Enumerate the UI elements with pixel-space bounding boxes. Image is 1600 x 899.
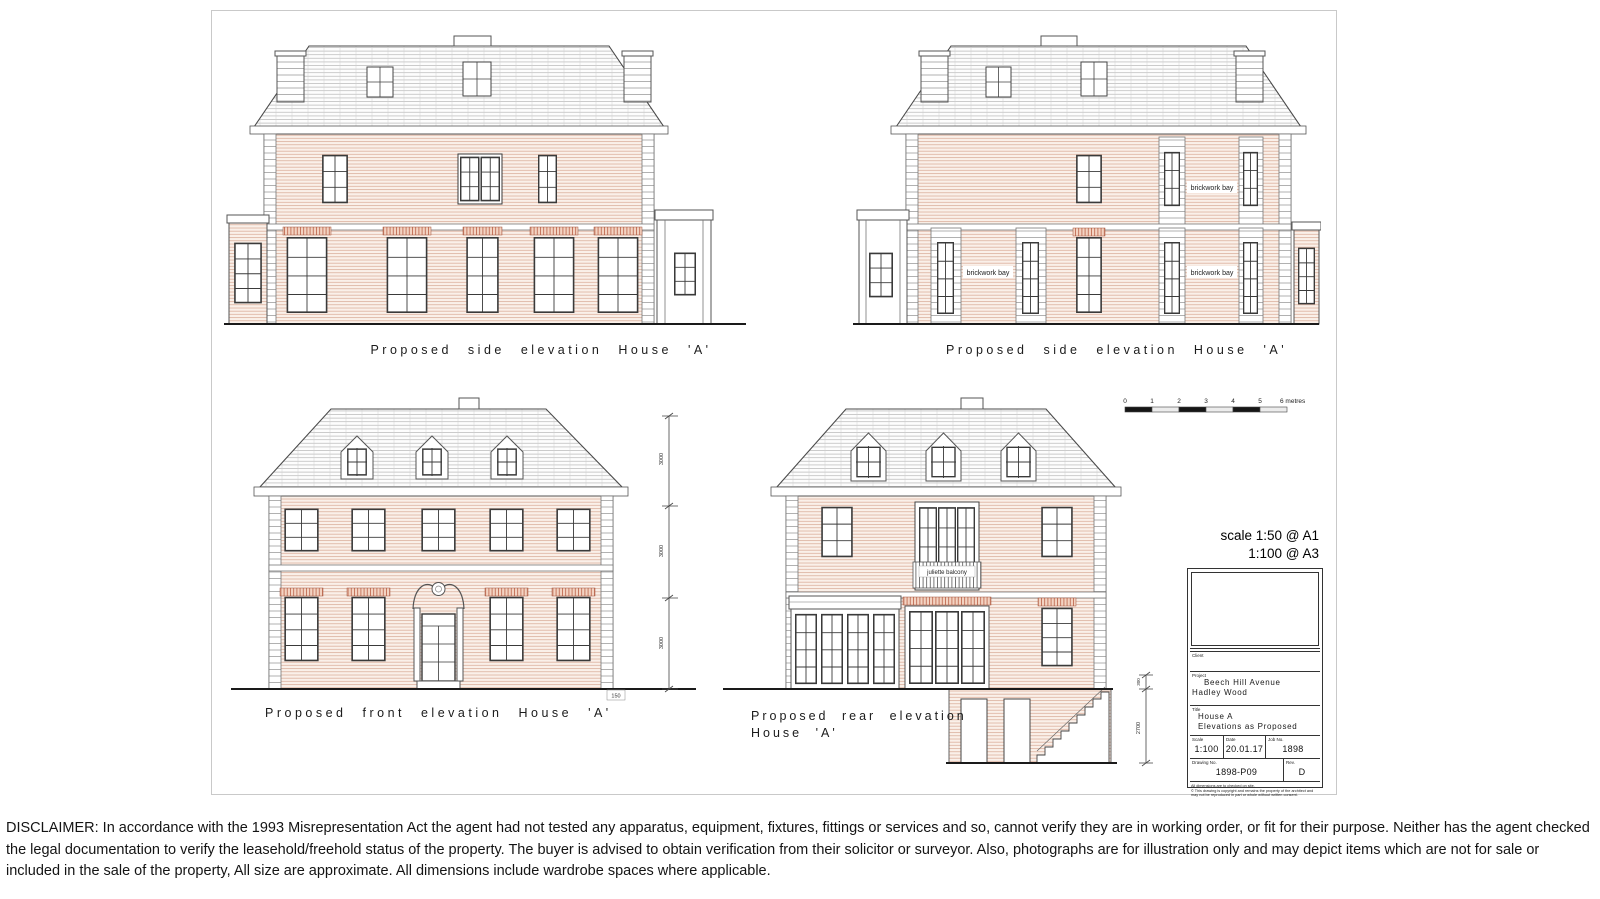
title-block-project: Project Beech Hill Avenue Hadley Wood (1190, 672, 1320, 706)
window (539, 156, 557, 203)
lean-to (857, 210, 909, 324)
quoins (601, 496, 613, 689)
brickwork-bay-label: brickwork bay (1191, 185, 1234, 192)
title-block-client: Client (1190, 652, 1320, 672)
dimension-150: 150 (607, 690, 625, 700)
dimension-label: 3000 (659, 637, 665, 649)
window (481, 157, 499, 200)
roof-vent-box (1041, 36, 1077, 46)
caption-front-elevation: Proposed front elevation House 'A' (265, 706, 585, 720)
caption-rear-line2: House 'A' (751, 725, 991, 742)
window (461, 157, 479, 200)
disclaimer-text: DISCLAIMER: In accordance with the 1993 … (6, 818, 1594, 883)
juliette-balcony: juliette balcony (913, 502, 981, 590)
drawing-number-cell: Drawing No. 1898-P09 (1190, 759, 1284, 781)
caption-side-elevation-left: Proposed side elevation House 'A' (331, 343, 751, 357)
dimension-line: 300 2700 (1136, 672, 1153, 766)
chimney (1236, 56, 1263, 102)
scale-note-line1: scale 1:50 @ A1 (1152, 527, 1319, 545)
drawing-number-label: Drawing No. (1190, 759, 1283, 765)
window (1042, 508, 1072, 557)
scale-note: scale 1:50 @ A1 1:100 @ A3 (1152, 527, 1319, 562)
cornice (254, 487, 628, 496)
date-label: Date (1224, 736, 1265, 742)
date-value: 20.01.17 (1224, 744, 1265, 754)
french-doors (903, 597, 991, 689)
drawing-number-value: 1898-P09 (1190, 767, 1283, 777)
title-block-notes: All dimensions are to checked on site. ©… (1190, 782, 1320, 798)
brickwork-bay-label: brickwork bay (967, 270, 1010, 277)
door (1004, 699, 1030, 763)
dimension-label: 3000 (659, 545, 665, 557)
dimension-label: 150 (611, 694, 620, 700)
chimney (921, 56, 948, 102)
scale-end-label: 6 metres (1280, 398, 1306, 405)
chimney (459, 398, 479, 409)
project-line2: Hadley Wood (1190, 688, 1320, 698)
side-elevation-right-drawing: brickwork bay brickwork bay brickwork ba… (851, 29, 1321, 339)
scale-note-line2: 1:100 @ A3 (1152, 545, 1319, 563)
title-block-meta-row: Scale 1:100 Date 20.01.17 Job No. 1898 (1190, 736, 1320, 759)
roof (776, 398, 1116, 488)
revision-label: Rev. (1284, 759, 1320, 765)
scale-value: 1:100 (1190, 744, 1223, 754)
juliette-balcony-label: juliette balcony (926, 570, 967, 576)
window (1077, 238, 1101, 312)
dimension-label: 3000 (659, 453, 665, 465)
job-label: Job No. (1266, 736, 1320, 742)
front-elevation-drawing: 3000 3000 3000 150 (226, 396, 701, 711)
scale-tick-label: 3 (1204, 398, 1208, 405)
job-value: 1898 (1266, 744, 1320, 754)
side-bay (227, 215, 269, 324)
caption-rear-line1: Proposed rear elevation (751, 708, 991, 725)
dimension-line: 3000 3000 3000 (659, 413, 678, 692)
orangery (789, 596, 901, 689)
roof (896, 36, 1301, 127)
quoins (269, 496, 281, 689)
rooflight (1081, 62, 1107, 96)
cornice (771, 487, 1121, 496)
window (822, 508, 852, 557)
title-block-logo-box (1191, 572, 1319, 646)
title-line1: House A (1190, 712, 1320, 722)
roof-vent-box (961, 398, 983, 409)
dimension-label: 300 (1136, 678, 1141, 686)
note-line2: © This drawing is copyright and remains … (1191, 789, 1319, 798)
window (1042, 608, 1072, 665)
scale-tick-label: 5 (1258, 398, 1262, 405)
side-bay (1292, 222, 1321, 324)
door-step (417, 681, 460, 689)
chimney (277, 56, 304, 102)
drawing-sheet: brickwork bay brickwork bay brickwork ba… (211, 10, 1337, 795)
title-block-drawing-row: Drawing No. 1898-P09 Rev. D (1190, 759, 1320, 782)
scale-cell: Scale 1:100 (1190, 736, 1224, 758)
brickwork-bay-label: brickwork bay (1191, 270, 1234, 277)
scale-tick-label: 2 (1177, 398, 1181, 405)
client-label: Client (1190, 652, 1320, 658)
scale-bar: 0 1 2 3 4 5 6 metres (1117, 394, 1327, 420)
roof (259, 398, 623, 488)
title-line2: Elevations as Proposed (1190, 722, 1320, 732)
scale-tick-label: 0 (1123, 398, 1127, 405)
roof-vent-box (454, 36, 491, 46)
caption-rear-elevation: Proposed rear elevation House 'A' (751, 708, 991, 741)
rooflight (986, 67, 1011, 97)
date-cell: Date 20.01.17 (1224, 736, 1266, 758)
rooflight (463, 62, 491, 96)
rooflight (367, 67, 393, 97)
roof (254, 36, 664, 127)
job-cell: Job No. 1898 (1266, 736, 1320, 758)
side-elevation-left-drawing (220, 29, 750, 339)
window (323, 156, 347, 203)
caption-side-elevation-right: Proposed side elevation House 'A' (946, 343, 1266, 357)
window (1077, 156, 1101, 203)
string-course (269, 565, 613, 571)
porch (655, 210, 713, 324)
scale-tick-label: 1 (1150, 398, 1154, 405)
dimension-label: 2700 (1136, 722, 1142, 734)
cornice (891, 126, 1306, 134)
cornice (250, 126, 668, 134)
project-line1: Beech Hill Avenue (1190, 678, 1320, 688)
revision-value: D (1284, 767, 1320, 777)
revision-cell: Rev. D (1284, 759, 1320, 781)
scale-tick-label: 4 (1231, 398, 1235, 405)
title-block-title: Title House A Elevations as Proposed (1190, 706, 1320, 736)
title-block: Client Project Beech Hill Avenue Hadley … (1187, 568, 1323, 788)
scale-label: Scale (1190, 736, 1223, 742)
chimney (624, 56, 651, 102)
